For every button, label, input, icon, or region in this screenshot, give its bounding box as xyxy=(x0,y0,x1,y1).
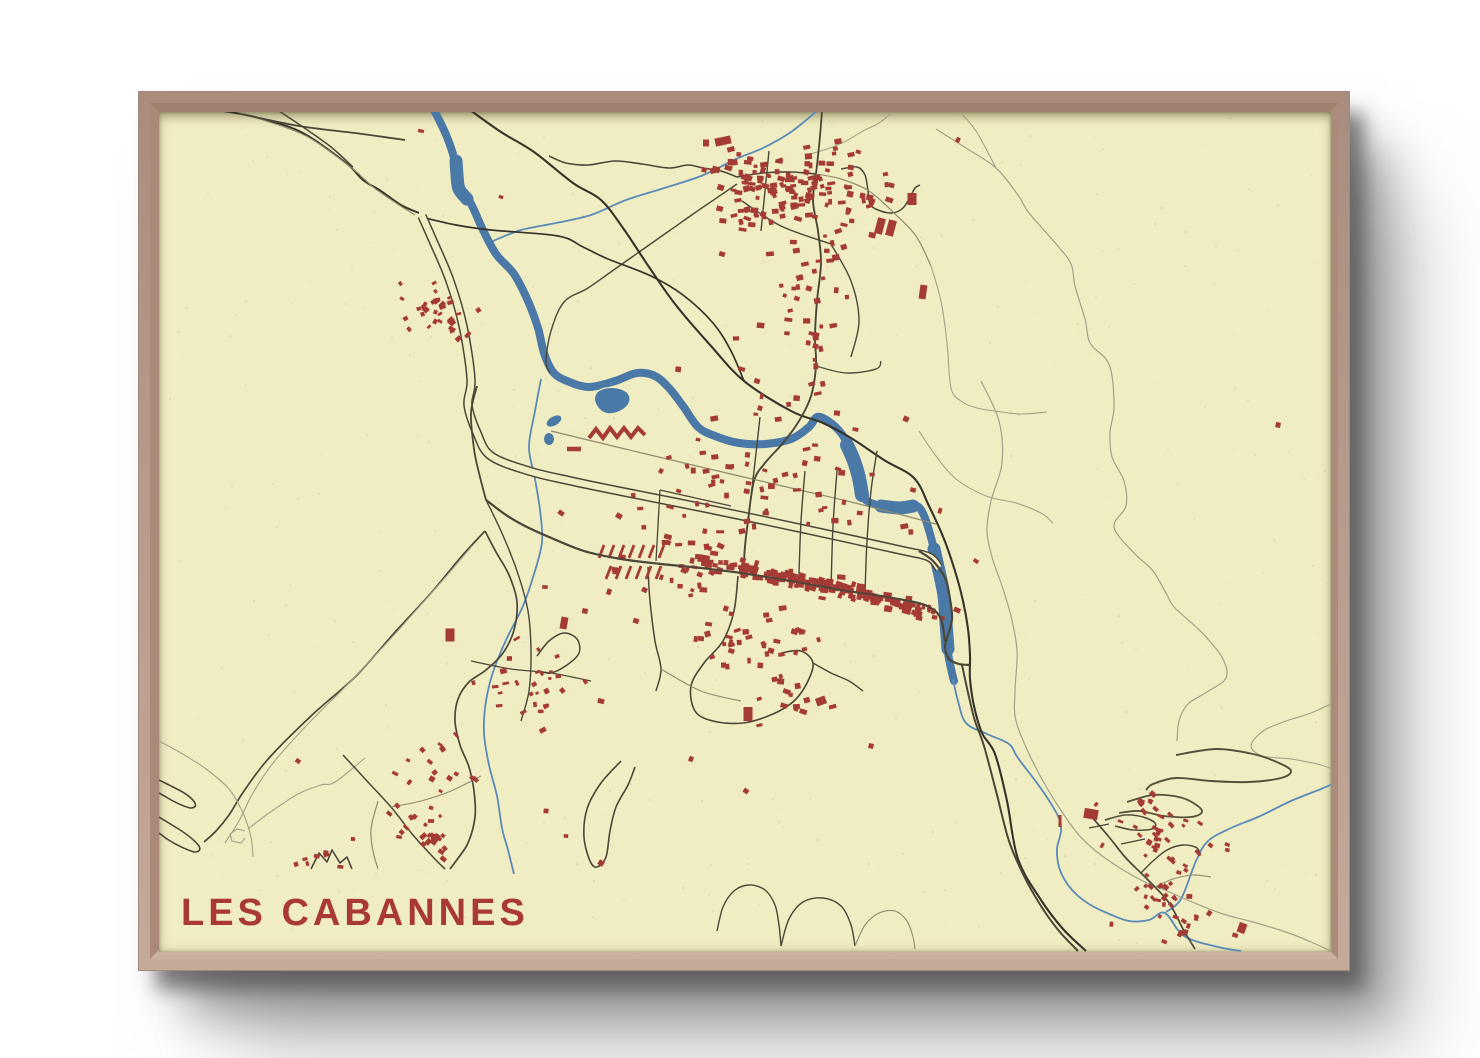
svg-text:LES CABANNES: LES CABANNES xyxy=(181,892,529,934)
